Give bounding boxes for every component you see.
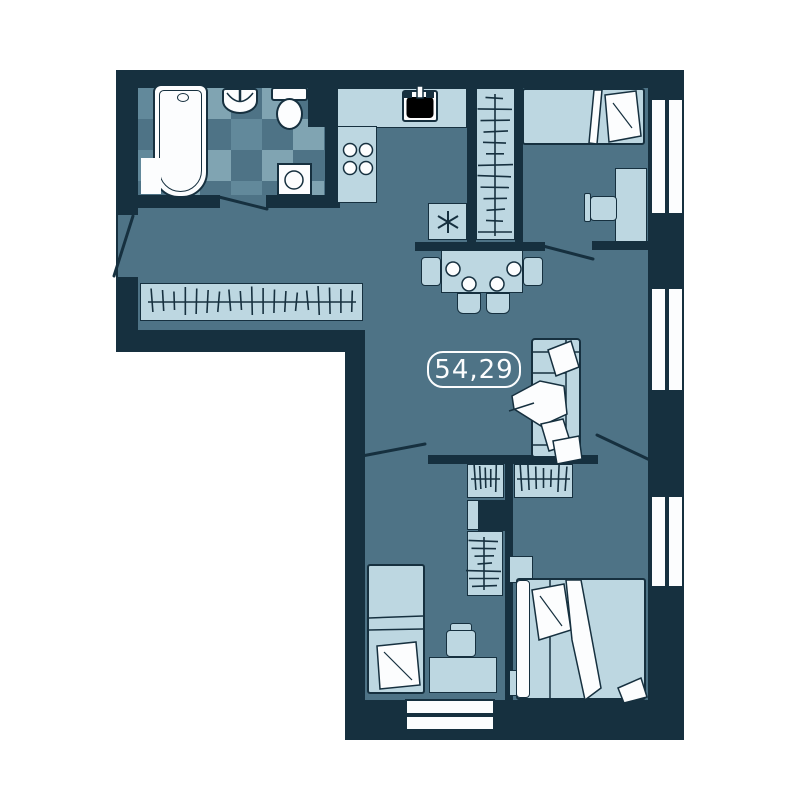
- bathtub-drain: [177, 93, 189, 102]
- dining-chair-bottom-1: [457, 293, 481, 314]
- window-right-top: [650, 98, 684, 215]
- bath-niche: [141, 158, 161, 194]
- dining-table: [441, 250, 523, 293]
- window-bottom: [405, 699, 495, 731]
- tile: [231, 119, 262, 150]
- sofa: [531, 338, 581, 458]
- entrance-door-opening: [118, 215, 138, 277]
- closet-tall: [467, 531, 503, 596]
- floor-plan: 54,29: [0, 0, 800, 800]
- kitchen-sink: [402, 90, 438, 122]
- closet-small-right: [514, 464, 573, 498]
- wall-kitchen-wardrobe: [467, 88, 476, 242]
- toilet-bowl: [276, 98, 303, 130]
- dining-chair-left: [421, 257, 441, 286]
- desk-bottom-left: [429, 657, 497, 693]
- dining-chair-bottom-2: [486, 293, 510, 314]
- dining-chair-right: [523, 257, 543, 286]
- bathtub: [153, 84, 208, 198]
- wall-closet-stub: [478, 500, 505, 531]
- chair-bottom-left: [446, 630, 476, 657]
- closet-small-left: [467, 464, 504, 498]
- bed-bottom-right: [516, 578, 646, 700]
- bed-top-bedroom: [522, 88, 645, 145]
- shelf-box: [467, 500, 479, 530]
- window-divider: [407, 713, 493, 717]
- area-value: 54,29: [434, 355, 513, 385]
- tile: [231, 181, 262, 195]
- chair-top-bedroom: [590, 196, 617, 221]
- window-divider: [665, 100, 669, 213]
- window-divider: [665, 497, 669, 586]
- washbasin: [222, 88, 258, 114]
- washing-machine: [277, 163, 312, 196]
- window-divider: [665, 289, 669, 390]
- window-right-middle: [650, 287, 684, 392]
- kitchen-counter-left: [337, 126, 377, 203]
- wardrobe-hallway: [140, 283, 363, 321]
- bathtub-inner-outline: [159, 90, 202, 192]
- desk-top-bedroom: [615, 168, 647, 242]
- headboard-bottom-right: [516, 580, 530, 698]
- window-right-bottom: [650, 495, 684, 588]
- refrigerator-spot: [428, 203, 467, 240]
- bed-bottom-left: [367, 564, 425, 694]
- wall-bedroom-top-bottom: [592, 241, 648, 250]
- wall-bath-bottom-right: [266, 195, 340, 208]
- area-badge: 54,29: [427, 351, 521, 388]
- wardrobe-top: [476, 88, 515, 240]
